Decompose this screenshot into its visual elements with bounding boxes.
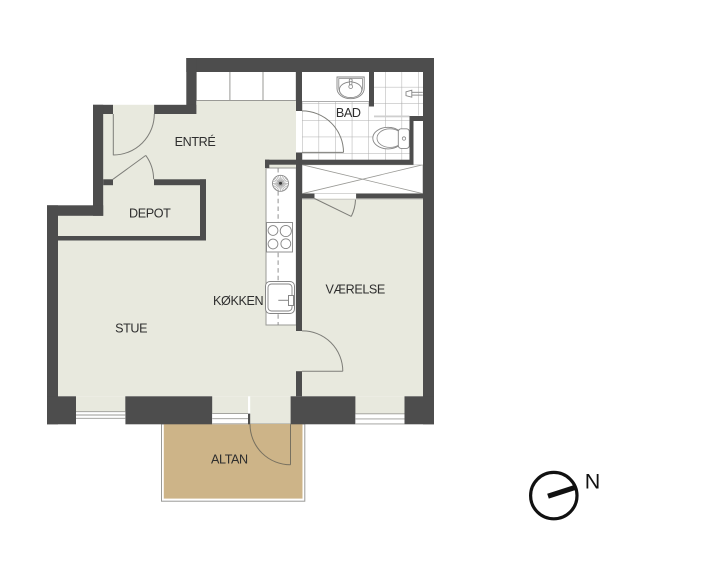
- svg-text:ENTRÉ: ENTRÉ: [175, 134, 216, 149]
- svg-text:BAD: BAD: [336, 106, 361, 120]
- svg-text:N: N: [585, 470, 601, 494]
- svg-text:STUE: STUE: [115, 321, 147, 335]
- svg-text:KØKKEN: KØKKEN: [213, 294, 263, 308]
- svg-text:VÆRELSE: VÆRELSE: [325, 283, 385, 297]
- svg-text:ALTAN: ALTAN: [211, 452, 248, 466]
- svg-text:DEPOT: DEPOT: [129, 207, 171, 221]
